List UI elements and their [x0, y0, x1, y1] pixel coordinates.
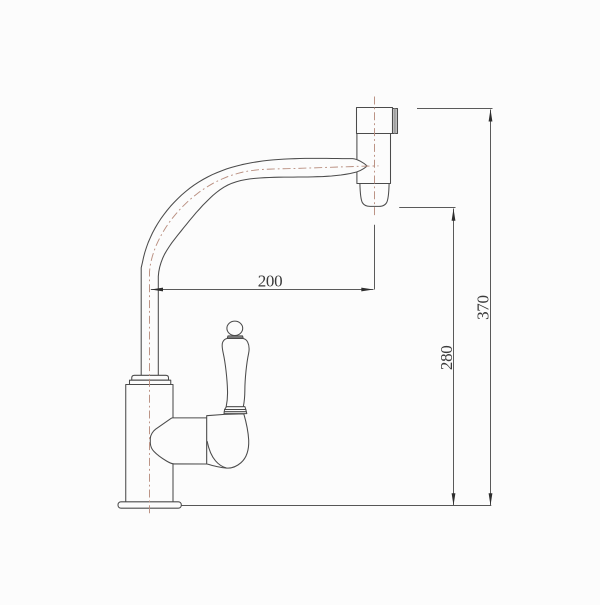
- svg-text:200: 200: [258, 272, 283, 291]
- svg-text:370: 370: [473, 295, 492, 320]
- svg-text:280: 280: [437, 345, 456, 370]
